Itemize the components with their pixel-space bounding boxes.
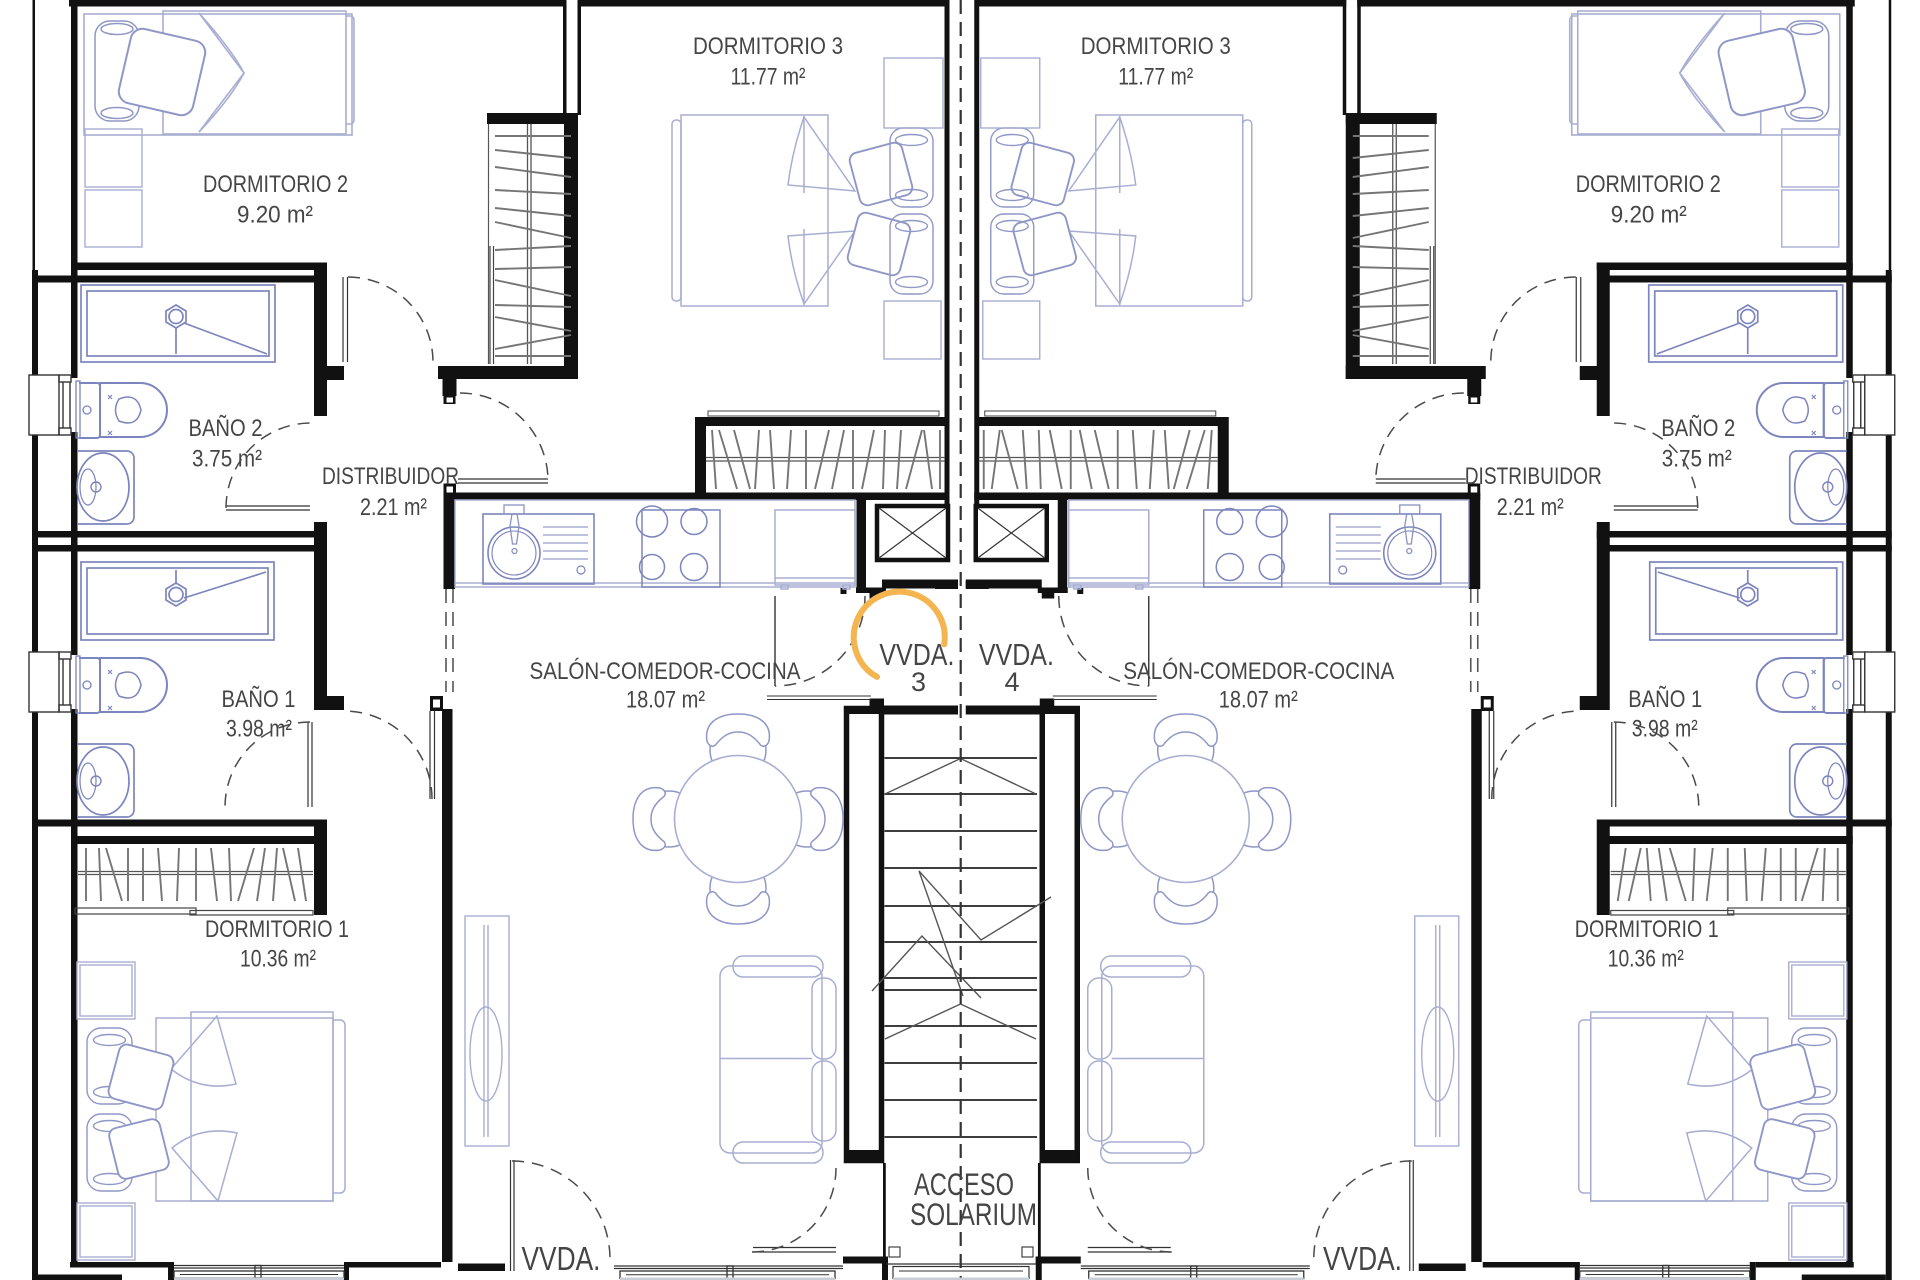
- svg-text:4: 4: [1004, 667, 1019, 697]
- svg-text:DORMITORIO 3: DORMITORIO 3: [1081, 33, 1231, 60]
- svg-text:DISTRIBUIDOR: DISTRIBUIDOR: [1465, 463, 1602, 490]
- svg-text:DORMITORIO 3: DORMITORIO 3: [693, 33, 843, 60]
- svg-text:3: 3: [911, 667, 926, 697]
- svg-text:3.75 m²: 3.75 m²: [1662, 446, 1732, 473]
- svg-text:3.98 m²: 3.98 m²: [226, 716, 292, 743]
- svg-text:3.98 m²: 3.98 m²: [1632, 716, 1698, 743]
- svg-text:11.77 m²: 11.77 m²: [1118, 64, 1193, 91]
- svg-text:10.36 m²: 10.36 m²: [240, 946, 316, 973]
- svg-text:9.20 m²: 9.20 m²: [237, 202, 313, 229]
- svg-text:SALÓN-COMEDOR-COCINA: SALÓN-COMEDOR-COCINA: [1123, 658, 1394, 685]
- svg-text:11.77 m²: 11.77 m²: [731, 64, 806, 91]
- svg-text:18.07 m²: 18.07 m²: [626, 687, 705, 714]
- svg-text:VVDA.: VVDA.: [522, 1240, 601, 1277]
- svg-text:DORMITORIO 1: DORMITORIO 1: [1575, 916, 1719, 943]
- svg-text:BAÑO 1: BAÑO 1: [222, 686, 296, 713]
- svg-text:SALÓN-COMEDOR-COCINA: SALÓN-COMEDOR-COCINA: [530, 658, 801, 685]
- svg-text:2.21 m²: 2.21 m²: [360, 494, 427, 521]
- svg-text:VVDA.: VVDA.: [1323, 1240, 1402, 1277]
- svg-text:10.36 m²: 10.36 m²: [1608, 946, 1684, 973]
- svg-text:BAÑO 2: BAÑO 2: [189, 415, 263, 442]
- svg-text:DISTRIBUIDOR: DISTRIBUIDOR: [322, 463, 459, 490]
- svg-text:9.20 m²: 9.20 m²: [1611, 202, 1687, 229]
- svg-text:DORMITORIO 1: DORMITORIO 1: [205, 916, 349, 943]
- svg-text:3.75 m²: 3.75 m²: [192, 446, 262, 473]
- svg-text:BAÑO 1: BAÑO 1: [1628, 686, 1702, 713]
- svg-text:BAÑO 2: BAÑO 2: [1661, 415, 1735, 442]
- svg-text:2.21 m²: 2.21 m²: [1497, 494, 1564, 521]
- svg-text:DORMITORIO 2: DORMITORIO 2: [1576, 171, 1721, 198]
- svg-text:DORMITORIO 2: DORMITORIO 2: [203, 171, 348, 198]
- svg-text:18.07 m²: 18.07 m²: [1219, 687, 1298, 714]
- svg-text:SOLARIUM: SOLARIUM: [910, 1196, 1037, 1232]
